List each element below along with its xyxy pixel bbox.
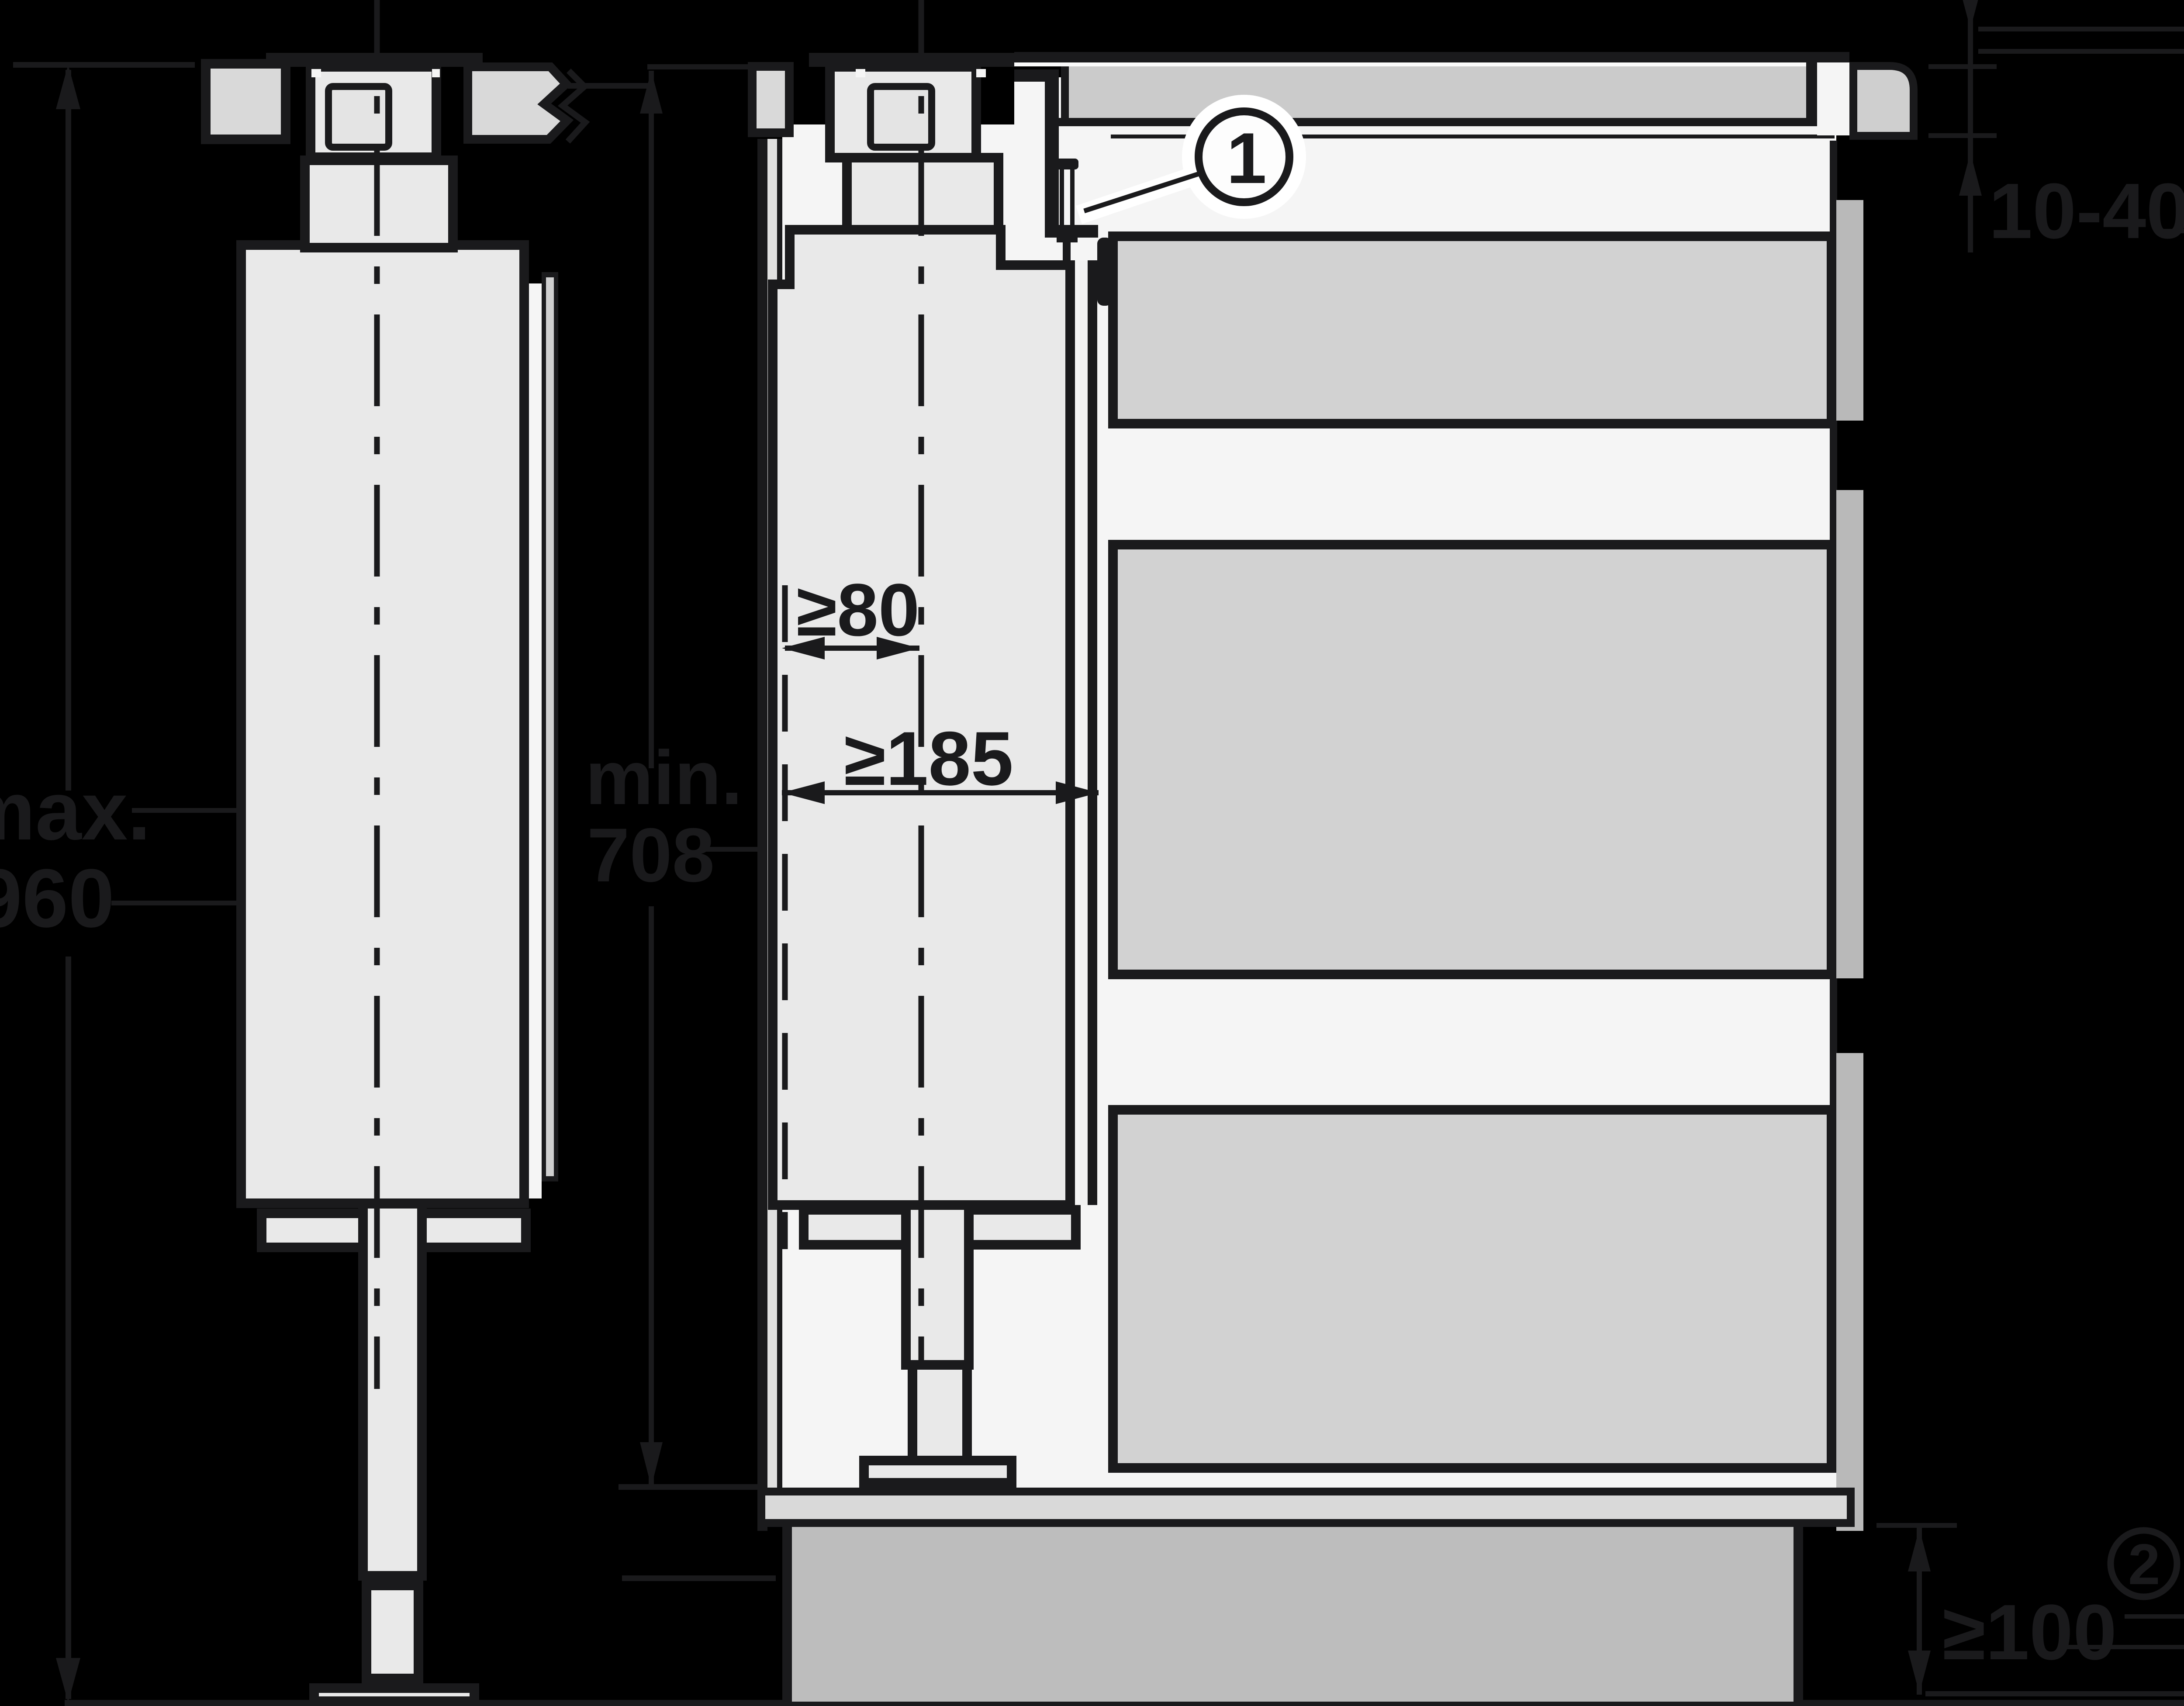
svg-text:10-40: 10-40 — [1989, 167, 2184, 255]
svg-text:708: 708 — [587, 813, 715, 898]
svg-text:max.: max. — [0, 765, 151, 857]
svg-text:960: 960 — [0, 852, 114, 945]
svg-text:≥80: ≥80 — [796, 569, 919, 652]
svg-text:min.: min. — [585, 736, 743, 821]
svg-text:≥100: ≥100 — [1942, 1589, 2117, 1676]
svg-text:2: 2 — [2128, 1532, 2160, 1596]
svg-text:≥185: ≥185 — [844, 716, 1013, 801]
svg-text:1: 1 — [1227, 118, 1267, 198]
